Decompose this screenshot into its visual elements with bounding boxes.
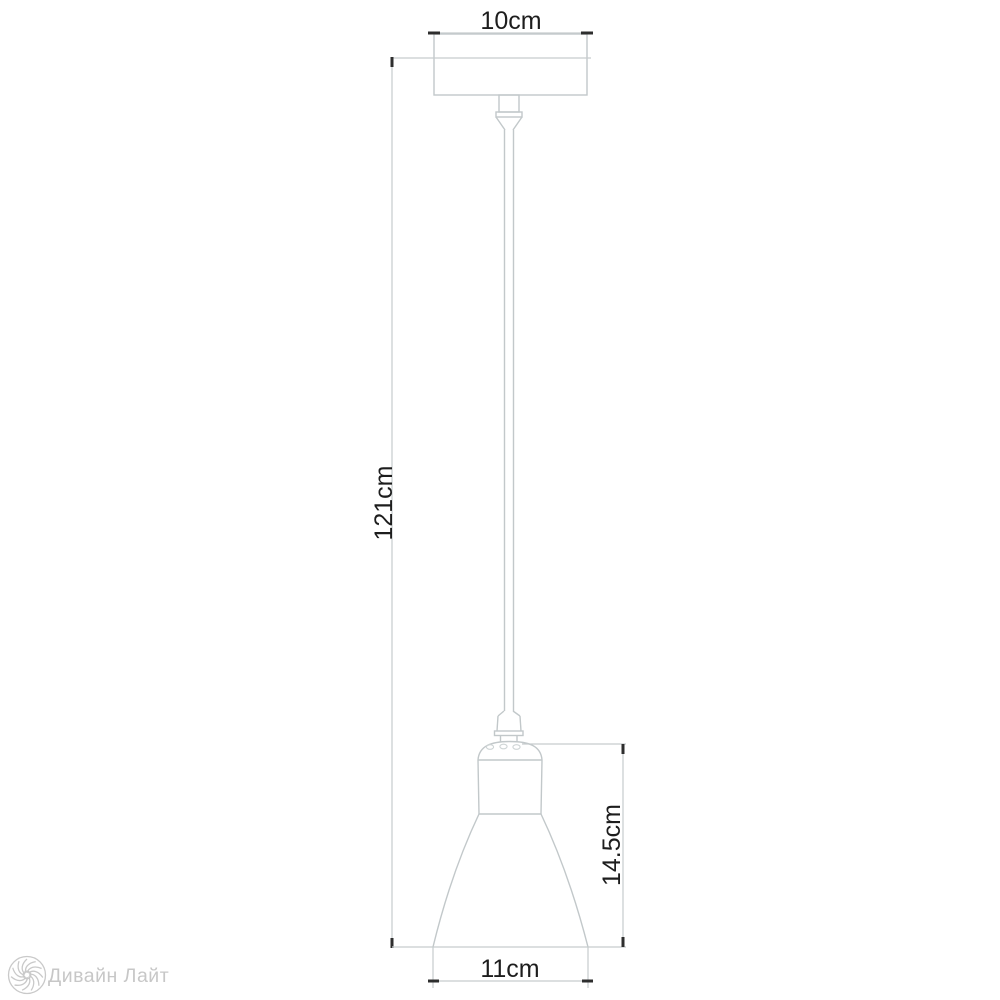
watermark: Дивайн Лайт — [9, 957, 170, 994]
dimension-tick — [582, 980, 593, 983]
ceiling-canopy — [434, 34, 587, 95]
product-dimension-drawing: 10cm 121cm 14.5cm 11cm — [0, 0, 1000, 1000]
canopy-stem — [496, 95, 522, 130]
canopy-width-label: 10cm — [480, 7, 541, 35]
dimension-tick — [428, 32, 440, 35]
shade-width-label: 11cm — [480, 955, 539, 983]
screw-hole — [486, 745, 493, 750]
dimension-canopy-width: 10cm — [428, 7, 593, 35]
dimension-shade-width: 11cm — [428, 947, 593, 988]
cone-shade — [433, 814, 588, 947]
drawing-svg: 10cm 121cm 14.5cm 11cm — [0, 0, 1000, 1000]
sun-logo-icon — [9, 957, 46, 994]
screw-hole — [500, 744, 507, 749]
suspension-cord — [505, 130, 514, 711]
dimension-tick — [622, 937, 625, 947]
screw-hole — [513, 745, 520, 750]
shade-height-label: 14.5cm — [598, 804, 626, 886]
dimension-tick — [581, 32, 593, 35]
cord-grip — [495, 711, 524, 742]
watermark-brand-text: Дивайн Лайт — [48, 965, 169, 987]
lamp-outline — [433, 34, 588, 947]
overall-height-label: 121cm — [370, 465, 398, 540]
dimension-tick — [428, 980, 439, 983]
dimension-tick — [622, 744, 625, 754]
dimension-tick — [391, 57, 394, 67]
socket-body — [478, 760, 542, 814]
dimension-shade-height: 14.5cm — [522, 744, 626, 947]
